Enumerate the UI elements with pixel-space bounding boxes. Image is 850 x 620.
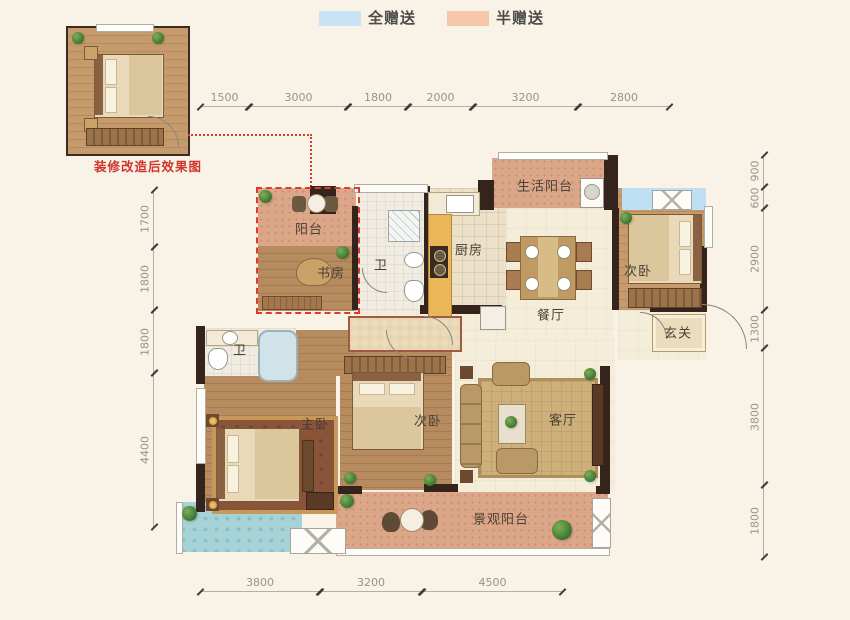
wall <box>478 180 494 210</box>
floorplan-canvas: 全赠送 半赠送 装修改造后效果图 1500 3000 1800 2000 320… <box>0 0 850 620</box>
bay-window <box>290 528 346 554</box>
toilet <box>404 280 424 302</box>
dim-top-5: 3200 <box>473 106 578 107</box>
plant-icon <box>505 416 517 428</box>
label-service-balcony: 生活阳台 <box>517 176 573 195</box>
sink <box>404 252 424 268</box>
inset-nightstand <box>84 46 98 60</box>
side-table <box>460 366 473 379</box>
plant-icon <box>424 474 436 486</box>
wall <box>596 486 610 494</box>
highlight-zone-outline <box>256 187 360 314</box>
bed <box>216 428 300 502</box>
window <box>498 152 608 160</box>
dim-top-1: 1500 <box>200 106 249 107</box>
dim-left-4: 4400 <box>153 373 154 527</box>
dim-top-2: 3000 <box>249 106 348 107</box>
dim-left-3: 1800 <box>153 310 154 373</box>
plant-icon <box>584 470 596 482</box>
dim-left-2: 1800 <box>153 247 154 310</box>
bay-window <box>652 190 692 210</box>
plant-icon <box>72 32 84 44</box>
dim-right-5: 3800 <box>763 348 764 485</box>
wardrobe <box>628 288 702 308</box>
shower <box>388 210 420 242</box>
inset-room <box>66 26 190 156</box>
dim-right-3: 2900 <box>763 208 764 310</box>
label-bath-upper: 卫 <box>374 255 388 274</box>
inset-door-arc <box>148 116 179 147</box>
bay-window <box>592 498 611 548</box>
window <box>196 388 206 464</box>
dim-top-4: 2000 <box>408 106 473 107</box>
wall <box>196 326 205 384</box>
label-bath-lower: 卫 <box>233 340 247 359</box>
window <box>354 184 428 193</box>
dim-top-6: 2800 <box>578 106 670 107</box>
wall <box>336 486 362 494</box>
plant-icon <box>344 472 356 484</box>
plant-icon <box>552 520 572 540</box>
dim-left-1: 1700 <box>153 190 154 247</box>
dining-table <box>520 236 576 300</box>
legend-swatch-full-gift <box>319 11 361 26</box>
legend-label-half-gift: 半赠送 <box>496 7 544 28</box>
bathtub <box>258 330 298 382</box>
label-dining: 餐厅 <box>537 305 565 324</box>
legend-swatch-half-gift <box>447 11 489 26</box>
railing <box>336 548 610 556</box>
highlight-connector-line <box>310 134 312 187</box>
plant-icon <box>620 212 632 224</box>
inset-window <box>96 24 154 32</box>
dressing-table <box>306 492 334 510</box>
toilet <box>208 348 228 370</box>
label-study: 书房 <box>317 263 345 282</box>
label-view-balcony: 景观阳台 <box>473 509 529 528</box>
entry-door-arc <box>702 304 747 349</box>
inset-caption: 装修改造后效果图 <box>58 156 238 175</box>
plant-icon <box>182 506 197 521</box>
lamp <box>209 417 217 425</box>
label-living: 客厅 <box>549 410 577 429</box>
label-foyer: 玄关 <box>664 323 692 342</box>
dim-top-3: 1800 <box>348 106 408 107</box>
bench <box>302 440 314 492</box>
dim-bottom-2: 3200 <box>320 591 422 592</box>
inset-bed <box>94 54 164 118</box>
plant-icon <box>152 32 164 44</box>
burner <box>434 264 446 276</box>
dim-right-2: 600 <box>763 187 764 208</box>
wall <box>612 208 619 310</box>
armchair <box>492 362 530 386</box>
dim-right-1: 900 <box>763 155 764 187</box>
label-bedroom-center: 次卧 <box>414 411 442 430</box>
label-kitchen: 厨房 <box>455 240 483 259</box>
plant-icon <box>340 494 354 508</box>
dim-bottom-1: 3800 <box>200 591 320 592</box>
dim-right-6: 1800 <box>763 485 764 557</box>
dim-bottom-3: 4500 <box>422 591 563 592</box>
label-master: 主卧 <box>301 414 329 433</box>
window <box>704 206 713 248</box>
chair <box>576 270 592 290</box>
wall <box>196 462 205 512</box>
round-table <box>400 508 424 532</box>
washer-drum <box>584 184 600 200</box>
dim-right-4: 1300 <box>763 310 764 348</box>
tv-cabinet <box>592 384 604 466</box>
legend-label-full-gift: 全赠送 <box>368 7 416 28</box>
kitchen-sink <box>446 195 474 213</box>
chair <box>382 512 400 532</box>
side-table <box>460 470 473 483</box>
sofa <box>460 384 482 468</box>
plant-icon <box>584 368 596 380</box>
armchair <box>496 448 538 474</box>
chair <box>576 242 592 262</box>
label-bedroom-tr: 次卧 <box>624 261 652 280</box>
highlight-connector-line <box>188 134 312 136</box>
fridge <box>480 306 506 330</box>
wall <box>604 155 618 210</box>
burner <box>434 250 446 262</box>
label-balcony-top: 阳台 <box>295 219 323 238</box>
lamp <box>209 501 217 509</box>
